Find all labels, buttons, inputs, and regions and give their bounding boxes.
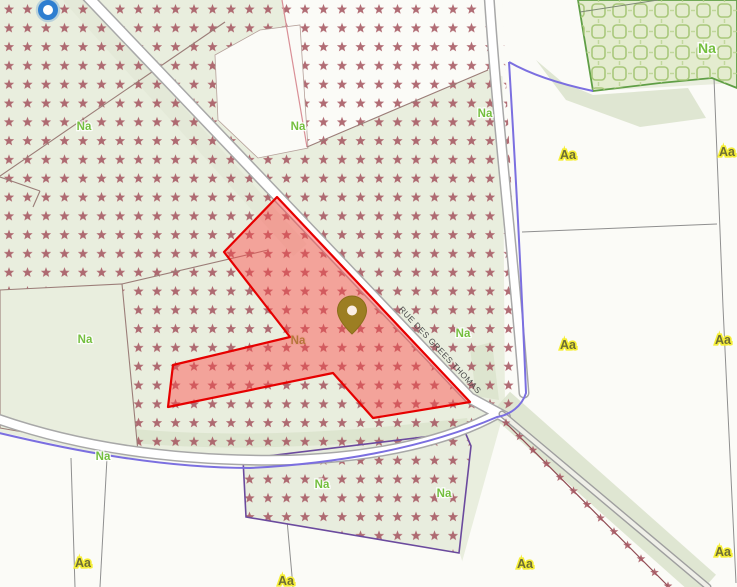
zone-label-na: Na — [698, 40, 716, 56]
zone-label-na: Na — [456, 328, 471, 340]
zone-label-na: Na — [96, 451, 111, 463]
zone-label-aa: Aa — [560, 338, 577, 352]
map-canvas[interactable]: RUE DES GREES THOMAS NaNaNaNaNaNaNaNaNaN… — [0, 0, 737, 587]
zone-label-na: Na — [78, 334, 93, 346]
zone-label-na: Na — [291, 121, 306, 133]
zone-label-na: Na — [291, 335, 306, 347]
zone-label-na: Na — [77, 121, 92, 133]
zone-label-aa: Aa — [719, 145, 736, 159]
zone-label-aa: Aa — [517, 557, 534, 571]
zone-label-aa: Aa — [560, 148, 577, 162]
zone-label-aa: Aa — [278, 574, 295, 587]
gps-location-icon — [37, 0, 59, 21]
zone-label-aa: Aa — [75, 556, 92, 570]
zone-label-na: Na — [315, 479, 330, 491]
zone-label-aa: Aa — [715, 333, 732, 347]
zone-label-na: Na — [437, 488, 452, 500]
zone-label-aa: Aa — [715, 545, 732, 559]
zone-label-na: Na — [478, 108, 493, 120]
